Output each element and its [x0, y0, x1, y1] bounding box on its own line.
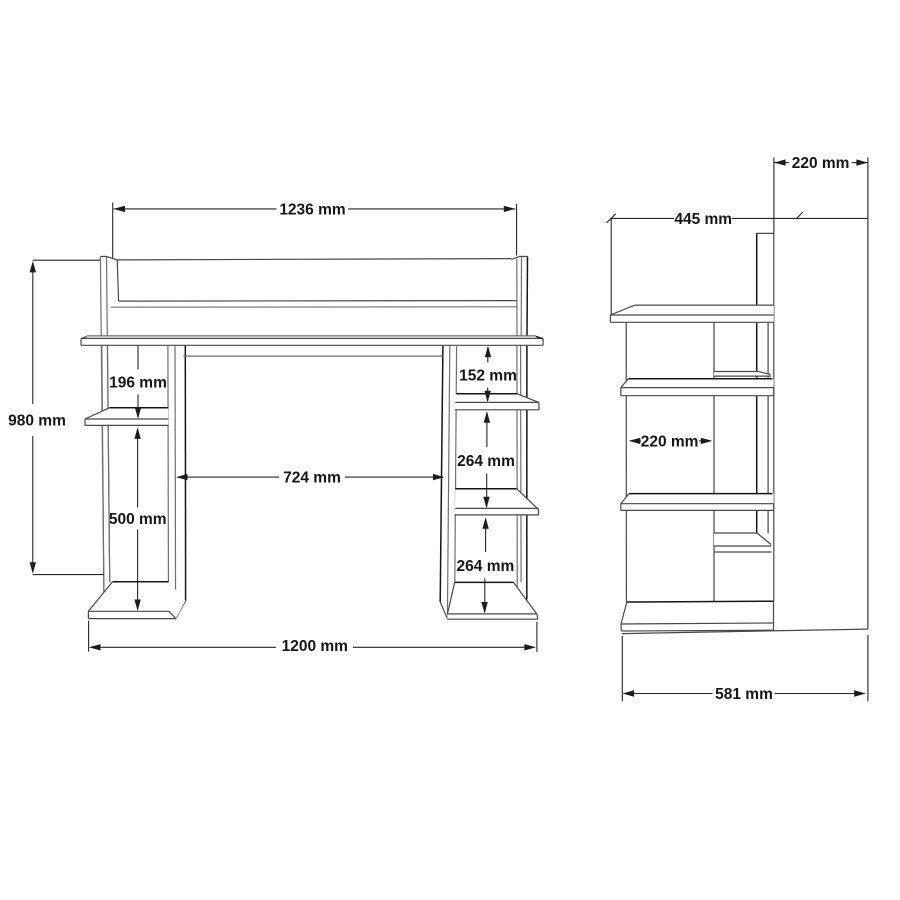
svg-text:445 mm: 445 mm [674, 211, 732, 228]
svg-text:1236 mm: 1236 mm [279, 201, 345, 218]
svg-text:264 mm: 264 mm [457, 558, 515, 575]
svg-text:581 mm: 581 mm [715, 686, 773, 703]
svg-text:152 mm: 152 mm [459, 367, 517, 384]
svg-text:500 mm: 500 mm [109, 511, 167, 528]
svg-text:980 mm: 980 mm [8, 413, 66, 430]
svg-text:1200 mm: 1200 mm [282, 638, 348, 655]
svg-text:220 mm: 220 mm [641, 433, 699, 450]
svg-text:264 mm: 264 mm [457, 453, 515, 470]
svg-text:196 mm: 196 mm [109, 375, 167, 392]
svg-text:724 mm: 724 mm [283, 470, 341, 487]
svg-text:220 mm: 220 mm [792, 155, 850, 172]
